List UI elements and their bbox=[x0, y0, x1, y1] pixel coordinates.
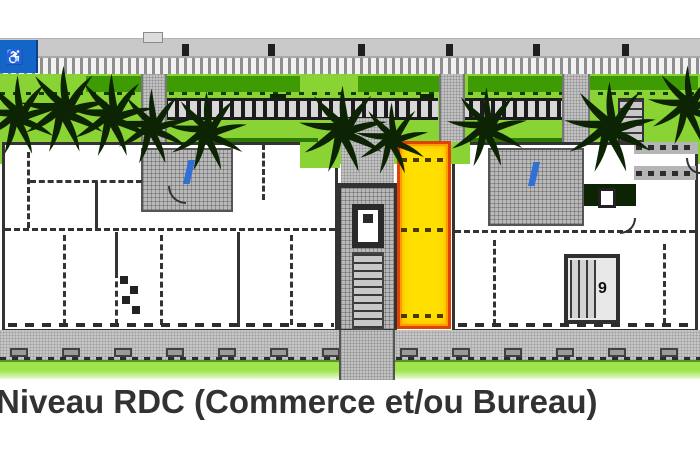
interior-wall bbox=[95, 182, 98, 230]
corridor-wall-dashed bbox=[455, 230, 695, 233]
interior-wall-dashed bbox=[290, 235, 293, 325]
hedge bbox=[358, 76, 442, 92]
planter bbox=[452, 348, 470, 357]
storefront-window-row bbox=[8, 323, 334, 327]
street-sign bbox=[143, 32, 163, 43]
stair-number-label: 9 bbox=[598, 280, 607, 298]
pergola-left bbox=[164, 98, 438, 120]
street-post bbox=[622, 44, 629, 56]
plumbing-fixture bbox=[132, 306, 140, 314]
planter bbox=[62, 348, 80, 357]
planter bbox=[270, 348, 288, 357]
interior-wall-dashed bbox=[493, 240, 496, 325]
entry-walkway bbox=[439, 74, 465, 146]
planter bbox=[660, 348, 678, 357]
highlighted-unit bbox=[397, 141, 451, 329]
lawn-patch bbox=[452, 142, 470, 164]
hedge bbox=[86, 76, 300, 92]
planter bbox=[608, 348, 626, 357]
planter bbox=[10, 348, 28, 357]
vent-dashes bbox=[636, 145, 696, 150]
duct-shaft bbox=[598, 188, 616, 208]
interior-wall-dashed bbox=[262, 144, 265, 200]
interior-wall-dashed bbox=[663, 244, 666, 324]
planter bbox=[556, 348, 574, 357]
right-entry-core bbox=[488, 148, 584, 226]
handicap-parking-space: ♿ bbox=[0, 40, 38, 73]
hedge bbox=[588, 76, 698, 90]
stair-treads bbox=[570, 260, 596, 318]
interior-wall-dashed bbox=[27, 152, 30, 228]
interior-wall bbox=[237, 232, 240, 327]
unit-storefront-mullions bbox=[401, 314, 447, 318]
core-front-wall bbox=[338, 183, 397, 188]
planter bbox=[504, 348, 522, 357]
street-post bbox=[533, 44, 540, 56]
interior-wall bbox=[115, 232, 118, 272]
fence-line bbox=[0, 92, 700, 95]
exterior-stairs bbox=[618, 98, 644, 144]
street-post bbox=[268, 44, 275, 56]
unit-partition-dashed bbox=[401, 158, 447, 162]
planter bbox=[166, 348, 184, 357]
street-post bbox=[182, 44, 189, 56]
entry-walkway bbox=[141, 74, 167, 150]
interior-wall-dashed bbox=[115, 272, 118, 325]
unit-partition-dashed bbox=[401, 228, 447, 232]
interior-wall-dashed bbox=[63, 235, 66, 325]
hedge bbox=[468, 76, 562, 92]
vent-dashes bbox=[636, 171, 694, 176]
planter bbox=[218, 348, 236, 357]
interior-wall-dashed bbox=[30, 180, 142, 183]
lawn-patch bbox=[300, 142, 340, 168]
planter bbox=[400, 348, 418, 357]
plan-title: Niveau RDC (Commerce et/ou Bureau) bbox=[0, 383, 597, 421]
street-post bbox=[358, 44, 365, 56]
planter bbox=[322, 348, 340, 357]
handicap-icon: ♿ bbox=[5, 48, 24, 66]
interior-wall-dashed bbox=[160, 235, 163, 325]
central-walkout bbox=[339, 330, 395, 380]
floor-plan-canvas: ♿ bbox=[0, 0, 700, 455]
storefront-window-row bbox=[458, 323, 694, 327]
street-post bbox=[446, 44, 453, 56]
central-entry-walkway bbox=[341, 118, 394, 188]
plumbing-fixture bbox=[122, 296, 130, 304]
core-staircase bbox=[352, 252, 384, 330]
corridor-wall-dashed bbox=[5, 228, 335, 231]
plumbing-fixture bbox=[130, 286, 138, 294]
elevator-icon bbox=[363, 214, 373, 223]
planter bbox=[114, 348, 132, 357]
street-road bbox=[0, 38, 700, 58]
street-paver-stripes bbox=[0, 56, 700, 76]
plumbing-fixture bbox=[120, 276, 128, 284]
